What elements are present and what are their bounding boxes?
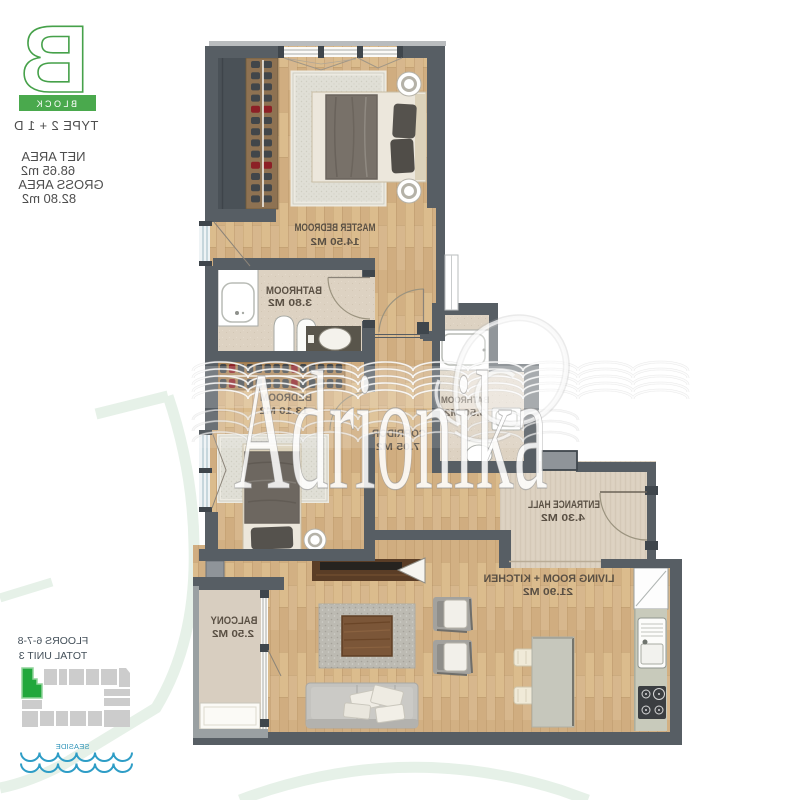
svg-text:TYPE 2 + 1 D: TYPE 2 + 1 D bbox=[14, 118, 99, 133]
svg-text:TOTAL UNIT 3: TOTAL UNIT 3 bbox=[19, 650, 88, 662]
svg-text:GROSS AREA: GROSS AREA bbox=[18, 177, 104, 192]
svg-text:21.90 M2: 21.90 M2 bbox=[522, 587, 573, 598]
svg-text:FLOORS 6-7-8: FLOORS 6-7-8 bbox=[18, 635, 89, 647]
svg-text:BATHROOM: BATHROOM bbox=[266, 285, 322, 297]
svg-text:MASTER BEDROOM: MASTER BEDROOM bbox=[295, 222, 376, 234]
svg-text:2.50 M2: 2.50 M2 bbox=[211, 629, 254, 640]
svg-text:BALCONY: BALCONY bbox=[210, 615, 258, 627]
svg-text:SEASIDE: SEASIDE bbox=[56, 742, 90, 751]
svg-text:82.80 m2: 82.80 m2 bbox=[22, 191, 76, 206]
svg-text:LIVING ROOM + KITCHEN: LIVING ROOM + KITCHEN bbox=[483, 573, 614, 585]
svg-text:68.65 m2: 68.65 m2 bbox=[21, 163, 75, 178]
svg-text:NET AREA: NET AREA bbox=[21, 149, 85, 164]
svg-text:14.50 M2: 14.50 M2 bbox=[310, 237, 360, 248]
svg-text:Adrionika: Adrionika bbox=[234, 337, 548, 525]
svg-text:3.80 M2: 3.80 M2 bbox=[267, 298, 312, 309]
svg-text:BLOCK: BLOCK bbox=[34, 99, 77, 109]
